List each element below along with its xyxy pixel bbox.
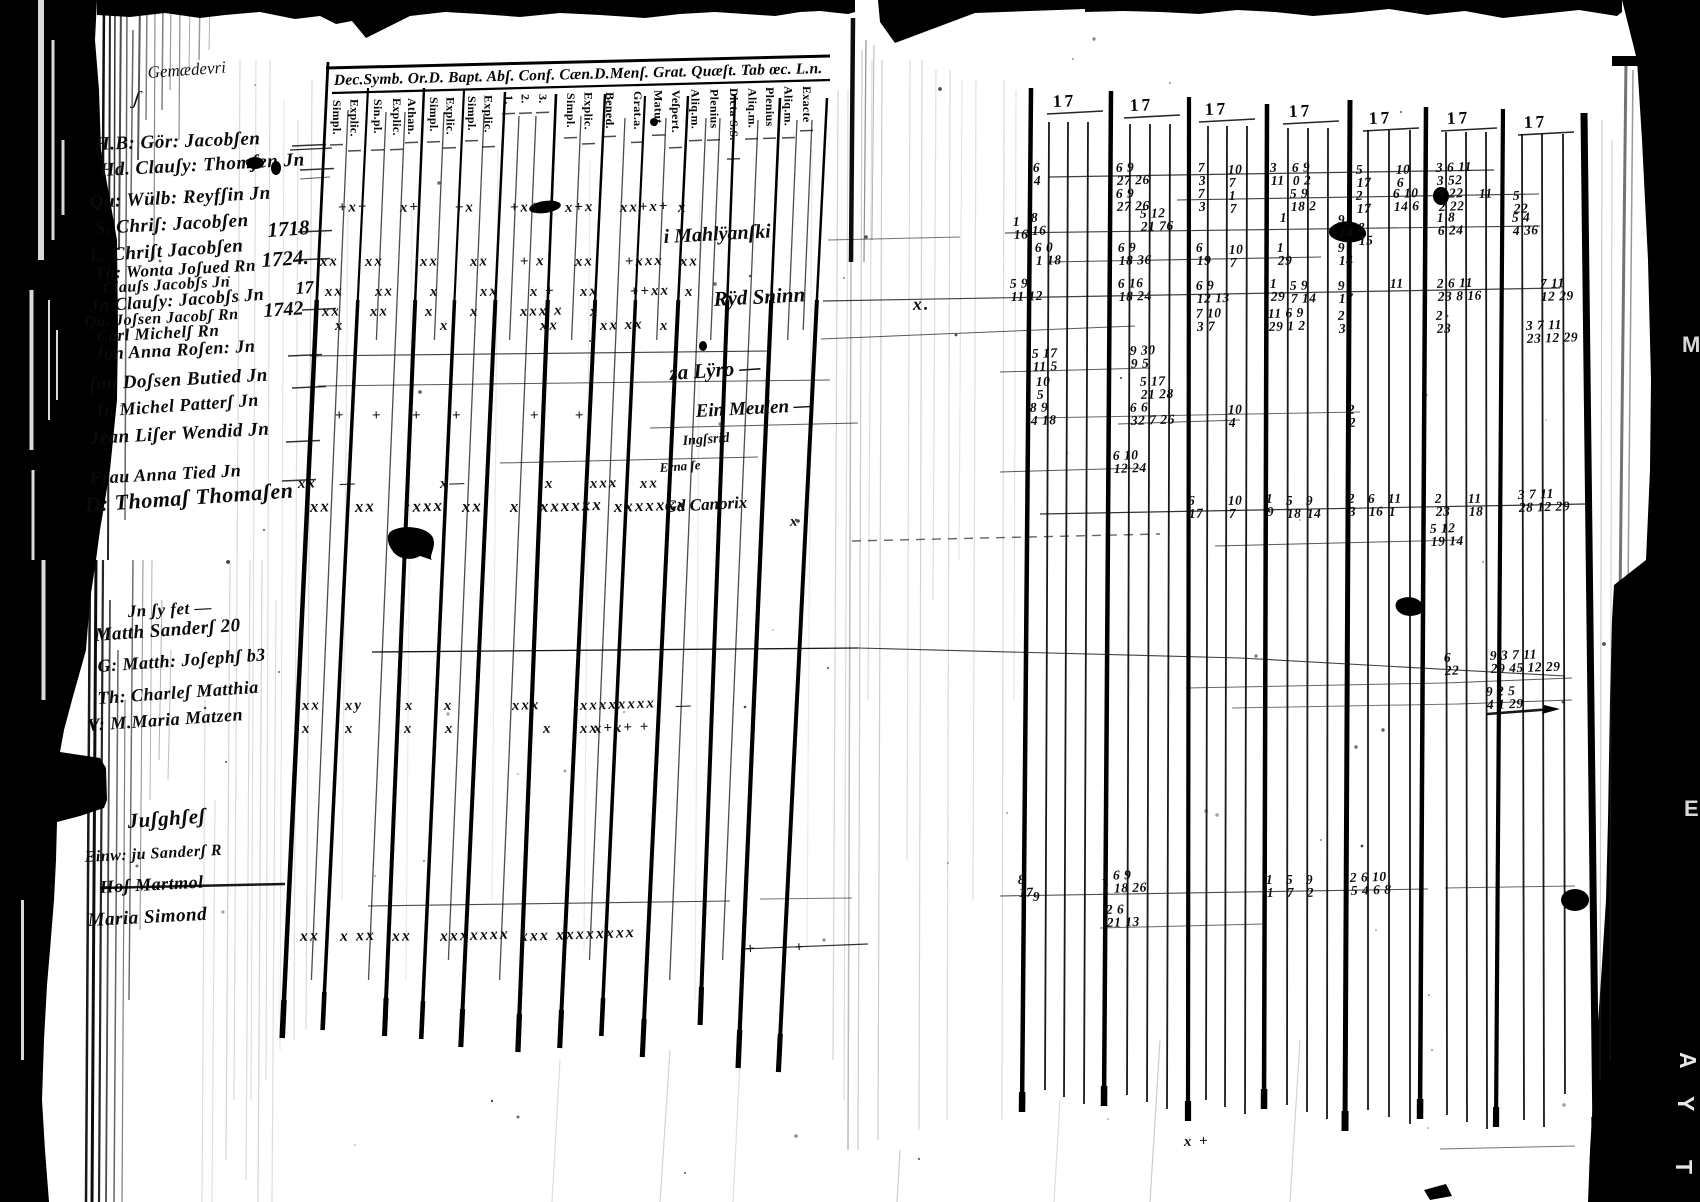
svg-text:+: +: [530, 408, 541, 424]
svg-text:1742: 1742: [263, 297, 304, 322]
svg-text:4: 4: [1033, 173, 1042, 188]
svg-text:xxxxxxx: xxxxxxx: [439, 926, 511, 945]
svg-text:T: T: [1671, 1160, 1697, 1174]
svg-text:1.: 1.: [502, 95, 516, 105]
svg-text:11: 11: [1479, 186, 1493, 201]
svg-text:9: 9: [1267, 504, 1275, 519]
svg-text:15: 15: [1359, 233, 1374, 248]
svg-text:x+x+ +: x+x+ +: [593, 719, 651, 737]
svg-text:x: x: [542, 721, 553, 737]
svg-text:+: +: [335, 408, 346, 424]
svg-text:18 2: 18 2: [1291, 198, 1317, 214]
svg-text:Simpl.: Simpl.: [330, 100, 344, 135]
svg-text:Explic.: Explic.: [482, 95, 496, 133]
svg-text:1: 1: [1280, 210, 1288, 225]
svg-text:29: 29: [1277, 253, 1293, 269]
svg-text:Aliq.m.: Aliq.m.: [745, 88, 759, 128]
svg-text:x: x: [508, 497, 520, 516]
svg-text:14: 14: [1339, 225, 1354, 240]
svg-text:17: 17: [1446, 107, 1470, 128]
svg-text:xx: xx: [391, 927, 413, 945]
svg-text:17: 17: [1523, 111, 1547, 132]
svg-text:Plenius: Plenius: [763, 87, 777, 126]
svg-text:xx: xx: [419, 253, 440, 270]
svg-text:1 18 26: 1 18 26: [1103, 879, 1147, 896]
svg-text:x: x: [404, 698, 415, 714]
svg-text:x: x: [403, 721, 414, 737]
svg-text:14: 14: [1339, 253, 1354, 268]
svg-text:1724.: 1724.: [261, 245, 310, 272]
svg-text:+: +: [372, 408, 383, 424]
svg-text:E: E: [1684, 796, 1699, 821]
svg-text:x—: x—: [439, 475, 467, 492]
svg-text:17: 17: [1204, 98, 1228, 119]
svg-text:Plenius: Plenius: [707, 89, 721, 128]
svg-text:7 14: 7 14: [1291, 290, 1317, 306]
svg-text:Athan.: Athan.: [405, 98, 419, 135]
svg-text:+: +: [745, 940, 755, 958]
svg-text:2: 2: [1348, 415, 1357, 430]
svg-text:x: x: [344, 721, 355, 737]
svg-text:xx: xx: [639, 475, 660, 492]
svg-text:1: 1: [1267, 885, 1275, 900]
svg-text:Rÿd Sninn: Rÿd Sninn: [712, 282, 806, 311]
svg-text:A: A: [1675, 1052, 1700, 1069]
svg-text:7: 7: [1230, 255, 1239, 270]
svg-text:1 18: 1 18: [1036, 252, 1062, 268]
svg-text:3: 3: [1348, 504, 1357, 519]
svg-text:—: —: [675, 697, 694, 714]
svg-text:Y: Y: [1673, 1096, 1699, 1111]
svg-text:3: 3: [1338, 321, 1347, 336]
svg-text:x: x: [677, 200, 688, 216]
svg-text:17: 17: [1052, 90, 1076, 111]
svg-text:xx: xx: [308, 496, 331, 516]
svg-text:xx: xx: [364, 253, 385, 270]
svg-text:17: 17: [1189, 505, 1205, 521]
svg-text:xx: xx: [374, 283, 395, 300]
svg-text:xx: xx: [460, 496, 483, 516]
svg-text:x: x: [684, 284, 695, 300]
svg-text:Grat.a.: Grat.a.: [631, 91, 645, 130]
svg-text:12 29: 12 29: [1541, 288, 1574, 304]
svg-text:17: 17: [1368, 107, 1392, 128]
svg-text:12 24: 12 24: [1114, 460, 1147, 476]
svg-text:++xx: ++xx: [630, 283, 671, 300]
svg-text:Explic.: Explic.: [582, 92, 596, 130]
svg-text:4 1 29: 4 1 29: [1486, 696, 1524, 712]
svg-text:xx: xx: [353, 496, 376, 516]
svg-text:11: 11: [1271, 173, 1285, 188]
svg-text:xx: xx: [479, 283, 500, 300]
svg-text:4 18: 4 18: [1030, 412, 1057, 428]
svg-text:18: 18: [1287, 506, 1302, 521]
svg-text:Simpl.: Simpl.: [465, 96, 479, 131]
svg-text:Bened.: Bened.: [603, 92, 617, 129]
svg-text:18 24: 18 24: [1119, 288, 1152, 304]
svg-text:Explic.: Explic.: [390, 98, 404, 136]
svg-text:4 36: 4 36: [1512, 222, 1539, 238]
svg-text:29: 29: [1270, 289, 1286, 305]
svg-text:x +: x +: [1183, 1133, 1210, 1150]
svg-text:19: 19: [1197, 253, 1212, 268]
svg-text:x: x: [444, 721, 455, 737]
svg-text:32 7 26: 32 7 26: [1130, 411, 1175, 428]
svg-text:x: x: [429, 284, 440, 300]
svg-text:x+x: x+x: [564, 199, 595, 216]
svg-text:x: x: [301, 721, 312, 737]
svg-text:5 4 6 8: 5 4 6 8: [1351, 882, 1392, 898]
svg-text:14: 14: [1307, 506, 1322, 521]
svg-text:17: 17: [1339, 290, 1355, 306]
svg-text:xx: xx: [299, 927, 321, 945]
svg-text:14 6: 14 6: [1394, 198, 1420, 214]
svg-text:xx xx: xx xx: [599, 316, 644, 334]
svg-text:3 7: 3 7: [1196, 318, 1217, 334]
svg-text:6 24: 6 24: [1438, 222, 1464, 238]
svg-text:Aliq.m.: Aliq.m.: [689, 89, 703, 129]
svg-text:xy: xy: [344, 697, 364, 714]
svg-text:x+: x+: [399, 199, 421, 216]
svg-text:M: M: [1682, 332, 1700, 357]
svg-text:21 76: 21 76: [1140, 218, 1174, 234]
svg-text:9 5: 9 5: [1131, 355, 1150, 371]
svg-text:—: —: [339, 475, 358, 492]
svg-text:17: 17: [1129, 94, 1153, 115]
svg-text:Erna ſe: Erna ſe: [658, 457, 701, 475]
svg-text:Simpl.: Simpl.: [427, 97, 441, 132]
svg-text:xx: xx: [539, 317, 560, 334]
svg-text:Simpl.: Simpl.: [564, 93, 578, 128]
svg-text:xx: xx: [369, 303, 390, 320]
svg-text:xx: xx: [297, 475, 318, 492]
svg-text:+x+: +x+: [510, 199, 541, 216]
svg-text:xx: xx: [324, 283, 345, 300]
svg-text:11 5: 11 5: [1033, 358, 1058, 374]
svg-text:29 45 12 29: 29 45 12 29: [1490, 659, 1561, 676]
svg-text::xxx: :xxx: [404, 496, 444, 516]
svg-text:xxxxxxxx: xxxxxxxx: [579, 695, 657, 714]
svg-text:2.: 2.: [519, 94, 533, 104]
svg-text:xxx: xxx: [511, 697, 541, 714]
svg-text:7: 7: [1229, 506, 1238, 521]
svg-text:x.: x.: [911, 293, 930, 314]
svg-text:x: x: [334, 318, 345, 334]
svg-text:2: 2: [1306, 885, 1315, 900]
svg-text:x: x: [659, 318, 670, 334]
svg-text:xx: xx: [319, 253, 340, 270]
svg-text:19 14: 19 14: [1431, 533, 1464, 549]
svg-text:16: 16: [1014, 227, 1029, 242]
svg-text:22: 22: [1444, 663, 1460, 679]
svg-text:23: 23: [1436, 321, 1452, 337]
svg-text:23 8 16: 23 8 16: [1437, 287, 1482, 304]
svg-text:12 13: 12 13: [1197, 290, 1230, 306]
svg-text:x: x: [469, 304, 480, 320]
svg-text:9: 9: [1033, 889, 1041, 904]
svg-text:xx: xx: [469, 253, 490, 270]
svg-text:7: 7: [1230, 201, 1239, 216]
svg-text:+: +: [575, 408, 586, 424]
svg-text:x: x: [589, 304, 600, 320]
svg-text:xxx: xxx: [589, 475, 619, 492]
svg-text:1: 1: [1389, 504, 1397, 519]
svg-text:23 12 29: 23 12 29: [1526, 329, 1579, 346]
svg-text:1718: 1718: [267, 215, 311, 242]
svg-text:4: 4: [1228, 415, 1237, 430]
svg-text:Explic.: Explic.: [443, 97, 457, 135]
svg-text:17: 17: [1288, 100, 1312, 121]
svg-text:+: +: [794, 939, 804, 956]
svg-text:Explic.: Explic.: [348, 99, 362, 137]
svg-text:18: 18: [1469, 504, 1484, 519]
svg-text:xx+x+: xx+x+: [619, 198, 670, 216]
svg-text:Exacte: Exacte: [800, 86, 814, 123]
svg-text:7: 7: [1287, 885, 1296, 900]
svg-text:11 12: 11 12: [1011, 288, 1044, 304]
svg-text:+xxx: +xxx: [625, 253, 665, 270]
svg-text:xx: xx: [679, 253, 700, 270]
svg-text:28 12 29: 28 12 29: [1518, 498, 1571, 515]
svg-text:x xx: x xx: [339, 927, 377, 945]
svg-text:+x+: +x+: [338, 199, 369, 216]
svg-text:3.: 3.: [536, 94, 550, 104]
svg-text:+ x: + x: [520, 253, 546, 270]
svg-text:Sin.pl.: Sin.pl.: [371, 99, 385, 134]
svg-text:x: x: [443, 698, 454, 714]
svg-text:18 36: 18 36: [1119, 252, 1152, 268]
svg-text:+: +: [412, 408, 423, 424]
svg-text:+x: +x: [455, 199, 476, 216]
svg-text:x: x: [424, 304, 435, 320]
svg-text:21 13: 21 13: [1106, 914, 1140, 930]
svg-text:16: 16: [1369, 504, 1384, 519]
svg-text:17: 17: [295, 277, 315, 298]
svg-text:xx: xx: [574, 253, 595, 270]
svg-text:xx: xx: [301, 697, 322, 714]
svg-text:xxxxxx: xxxxxx: [538, 495, 603, 516]
svg-text:11: 11: [1390, 276, 1404, 291]
svg-text:Veſpert.: Veſpert.: [669, 90, 683, 133]
svg-text:17: 17: [1357, 200, 1373, 216]
svg-text:16: 16: [1032, 223, 1047, 238]
svg-text:Aliq.m.: Aliq.m.: [782, 86, 796, 126]
svg-text:x: x: [544, 476, 555, 492]
svg-text:x: x: [439, 318, 450, 334]
svg-text:+: +: [452, 408, 463, 424]
svg-text:23: 23: [1435, 504, 1451, 520]
svg-text:x +: x +: [529, 283, 556, 300]
svg-text:xx: xx: [579, 283, 600, 300]
svg-text:29 1 2: 29 1 2: [1268, 318, 1306, 334]
svg-text:3: 3: [1198, 199, 1207, 214]
svg-text:Dicta S.S.: Dicta S.S.: [727, 88, 741, 141]
